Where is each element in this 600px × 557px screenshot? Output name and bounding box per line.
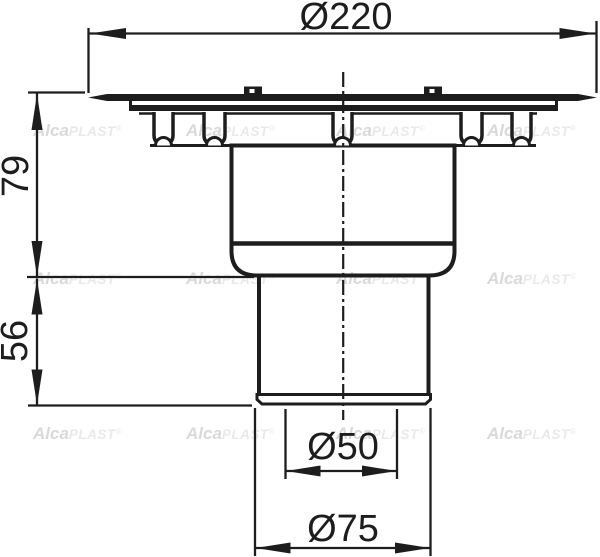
mounting-clip-left (244, 87, 262, 95)
brand-watermark: AlcaPLAST® (32, 424, 122, 443)
brand-watermark: AlcaPLAST® (185, 121, 275, 140)
brand-watermark: AlcaPLAST® (32, 121, 122, 140)
arrowhead-right (560, 28, 596, 39)
brand-watermark: AlcaPLAST® (335, 424, 425, 443)
technical-drawing-page: Ø220 79 56 Ø50 Ø75 AlcaPLAST® AlcaPLAST® (0, 0, 600, 557)
brand-watermark: AlcaPLAST® (335, 121, 425, 140)
brand-watermark: AlcaPLAST® (486, 121, 576, 140)
collar-tab-arch (464, 138, 480, 146)
dimension-outlet-height: 56 (0, 277, 254, 406)
collar-tab-arch (156, 138, 172, 146)
arrowhead-left (90, 28, 126, 39)
arrowhead-down (32, 370, 43, 406)
outlet-height-label: 56 (0, 320, 36, 362)
arrowhead-left (256, 543, 291, 554)
brand-watermark: AlcaPLAST® (185, 269, 275, 288)
brand-watermark: AlcaPLAST® (32, 269, 122, 288)
arrowhead-right (395, 543, 430, 554)
dimension-outlet-inner-diameter: Ø50 (286, 409, 398, 479)
mounting-clip-right (424, 87, 442, 95)
floor-drain-technical-drawing: Ø220 79 56 Ø50 Ø75 AlcaPLAST® AlcaPLAST® (0, 0, 600, 557)
body-height-label: 79 (0, 155, 37, 197)
brand-watermark: AlcaPLAST® (486, 269, 576, 288)
outlet-outer-diameter-label: Ø75 (307, 508, 379, 550)
brand-watermark: AlcaPLAST® (335, 269, 425, 288)
brand-watermark: AlcaPLAST® (486, 424, 576, 443)
brand-watermark: AlcaPLAST® (185, 424, 275, 443)
flange-diameter-label: Ø220 (300, 0, 393, 38)
